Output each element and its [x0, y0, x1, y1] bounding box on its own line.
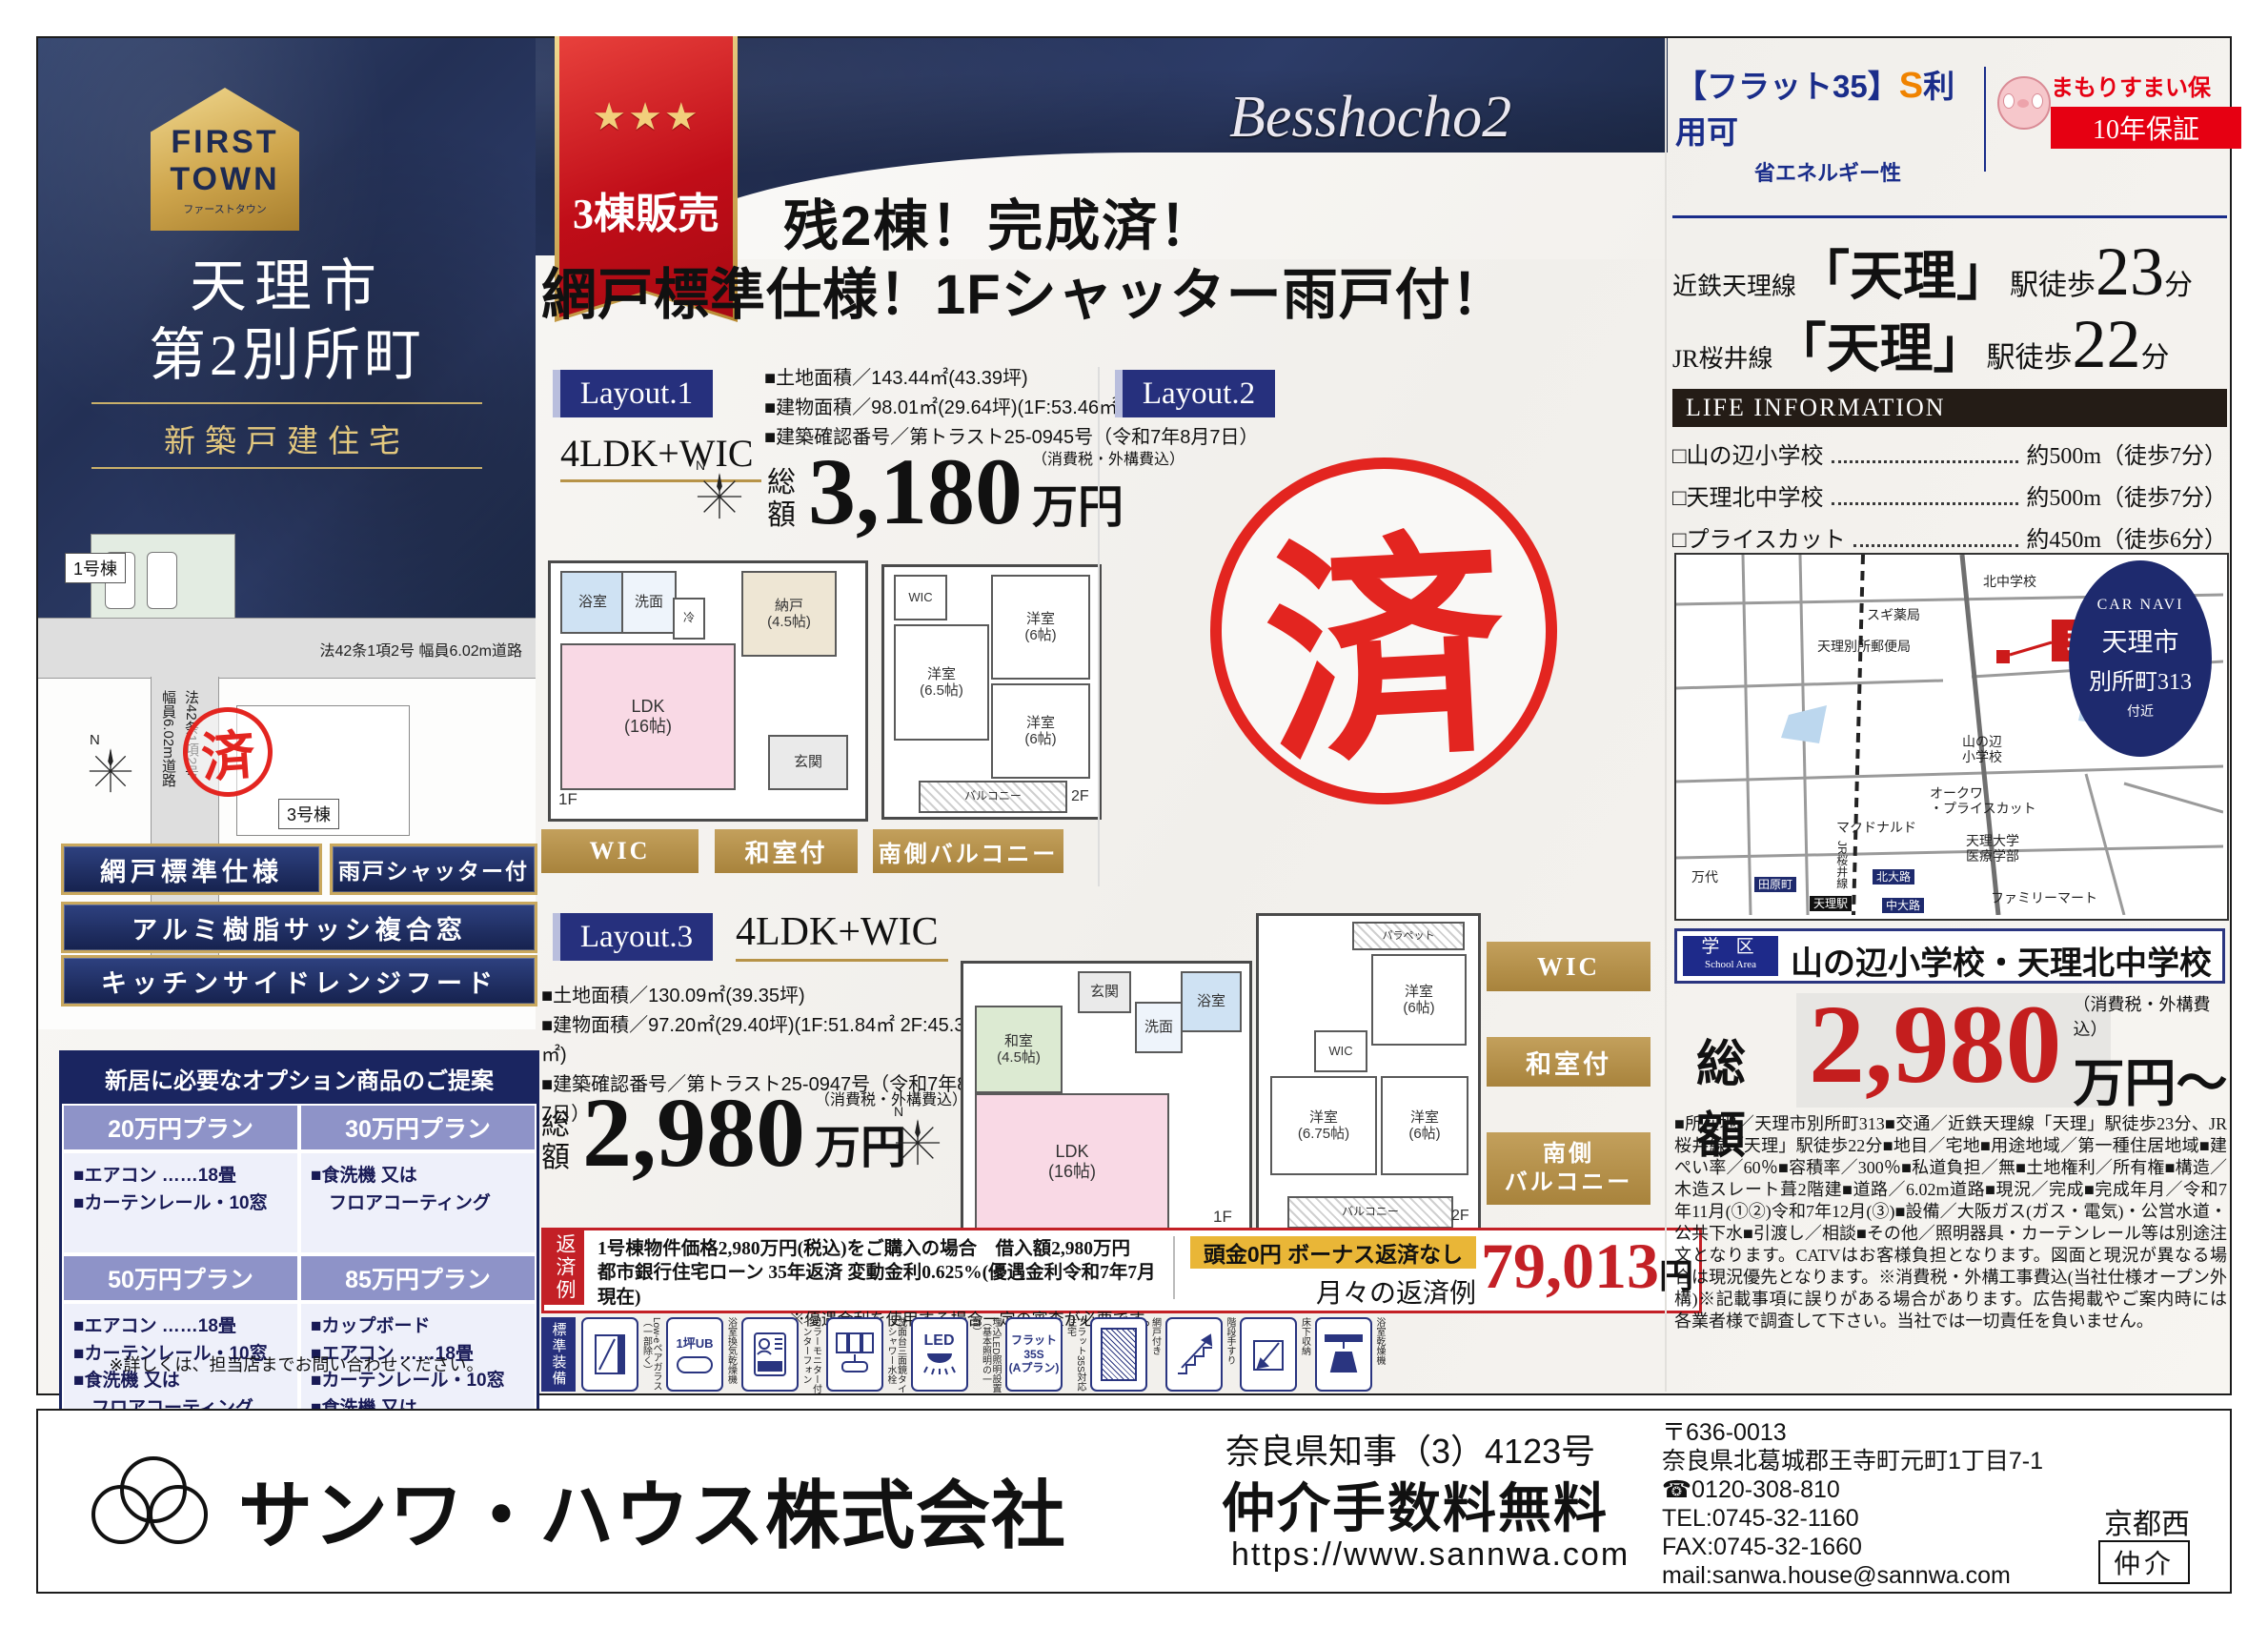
- price-note: （消費税・外構費込）: [815, 1087, 967, 1109]
- map-station-chip: 田原町: [1754, 877, 1796, 892]
- room-washroom: 洗面: [1135, 1002, 1183, 1053]
- station-line: JR桜井線: [1672, 339, 1772, 375]
- intercom-icon: [741, 1317, 799, 1392]
- map-label: スギ薬局: [1867, 607, 1920, 622]
- repayment-line1: 1号棟物件価格2,980万円(税込)をご購入の場合 借入額2,980万円: [597, 1237, 1160, 1261]
- school-area-tag: 学 区 School Area: [1683, 936, 1778, 976]
- equipment-item: 1坪UB 浴室換気乾燥機: [666, 1317, 736, 1392]
- repayment-highlight: 頭金0円 ボーナス返済なし: [1190, 1236, 1476, 1269]
- room-ldk: LDK (16帖): [560, 643, 736, 790]
- equipment-side-label: 標準装備: [541, 1317, 576, 1392]
- option-plan-items: ■エアコン ……18畳 ■カーテンレール・10窓: [62, 1151, 299, 1254]
- branch-name: 京都西: [2104, 1500, 2190, 1542]
- room-balcony: バルコニー: [919, 781, 1067, 813]
- company-logo-icon: [91, 1456, 206, 1544]
- brokerage-fee-free: 仲介手数料無料: [1222, 1466, 1609, 1543]
- column-divider: [1098, 367, 1100, 886]
- school-area-value: 山の辺小学校・天理北中学校: [1782, 937, 2220, 984]
- equipment-item: 浴室乾燥機: [1315, 1317, 1385, 1392]
- life-value: 約500m（徒歩7分）: [2026, 437, 2227, 470]
- station-walk: 駅徒歩: [1986, 334, 2072, 376]
- school-tag-en: School Area: [1683, 959, 1778, 970]
- company-url: https://www.sannwa.com: [1231, 1536, 1630, 1574]
- road-h-label: 法42条1項2号 幅員6.02m道路: [38, 619, 536, 661]
- station-unit: 分: [2140, 334, 2169, 376]
- gold-divider-top: [91, 402, 482, 404]
- floor-label-2f: 2F: [1071, 788, 1089, 805]
- flat35-underline: [1672, 215, 2227, 218]
- room-bedroom: 洋室 (6.75帖): [1270, 1076, 1377, 1175]
- layout3-feature-tag: 和室付: [1487, 1037, 1650, 1087]
- site-plot1-label: 1号棟: [65, 553, 126, 583]
- insurance-warranty: 10年保証: [2051, 107, 2241, 149]
- carnavi-title: CAR NAVI: [2097, 597, 2184, 614]
- map-label: 天理別所郵便局: [1817, 639, 1911, 654]
- equipment-strip: 標準装備 Low-eペアガラス（一部除く） 1坪UB 浴室換気乾燥機 カラーモニ…: [541, 1317, 1696, 1392]
- layout1-feature-tag: 和室付: [715, 829, 858, 873]
- logo-kana: ファーストタウン: [183, 201, 266, 216]
- sold-stamp-large: 済: [1202, 449, 1567, 814]
- layout3-tag: Layout.3: [560, 913, 713, 961]
- flat35-block: 【フラット35】S利用可 省エネルギー性: [1675, 61, 1980, 187]
- station-row-kintetsu: 近鉄天理線 「天理」 駅徒歩 23 分: [1672, 233, 2193, 312]
- feature-button-rangehood: キッチンサイドレンジフード: [61, 955, 537, 1006]
- compass-icon: N: [894, 1104, 942, 1171]
- room-washroom: 洗面: [621, 571, 677, 634]
- bath-dryer-icon: [1315, 1317, 1372, 1392]
- flat35-s: S: [1899, 66, 1923, 106]
- station-minutes: 22: [2072, 305, 2140, 384]
- life-label: □プライスカット: [1672, 520, 1846, 554]
- logo-town: TOWN: [170, 161, 279, 198]
- life-label: □山の辺小学校: [1672, 437, 1824, 470]
- layout3-floorplan-1f: 和室 (4.5帖) 玄関 洗面 浴室 LDK (16帖) 1F: [961, 961, 1252, 1239]
- ribbon-stars-icon: ★★★: [555, 95, 738, 139]
- price-note: （消費税・外構費込）: [1032, 446, 1185, 469]
- freedial-number: ☎0120-308-810: [1662, 1475, 2043, 1504]
- room-parapet: パラペット: [1352, 922, 1465, 950]
- option-plan-items: ■食洗機 又は フロアコーティング: [299, 1151, 537, 1254]
- room-balcony: バルコニー: [1287, 1196, 1453, 1229]
- layout1-price: 総額 3,180 （消費税・外構費込） 万円: [767, 446, 1185, 537]
- layout1-floorplan-2f: WIC 洋室 (6帖) 洋室 (6.5帖) 洋室 (6帖) バルコニー 2F: [881, 564, 1102, 820]
- map-station-chip: 天理駅: [1810, 896, 1852, 911]
- layout3-tag-bar: [553, 913, 560, 961]
- life-info-row: □山の辺小学校約500m（徒歩7分）: [1672, 437, 2227, 470]
- map-label: オークワ ・プライスカット: [1930, 785, 2036, 816]
- right-column-divider: [1665, 38, 1667, 1392]
- address: 奈良県北葛城郡王寺町元町1丁目7-1: [1662, 1447, 2043, 1475]
- footer-panel: サンワ・ハウス株式会社 奈良県知事（3）4123号 仲介手数料無料 https:…: [36, 1409, 2232, 1594]
- option-plans-title: 新居に必要なオプション商品のご提案: [62, 1053, 537, 1104]
- layout3-feature-tag: WIC: [1487, 942, 1650, 991]
- station-name: 「天理」: [1796, 234, 2010, 311]
- layout1-feature-tag: WIC: [541, 829, 699, 873]
- room-bedroom: 洋室 (6.5帖): [894, 624, 989, 741]
- equipment-item: カラーモニター付インターフォン: [741, 1317, 820, 1392]
- compass-n: N: [90, 732, 133, 748]
- total-amount: 2,980: [1809, 991, 2062, 1098]
- price-prefix: 総額: [767, 467, 799, 531]
- equipment-item: LED 埋込LED照明設置（基本照明の一部）: [911, 1317, 1001, 1392]
- map-label: 天理大学 医療学部: [1966, 833, 2019, 864]
- life-info-title: LIFE INFORMATION: [1672, 389, 2227, 427]
- layout3-spec-building: ■建物面積／97.20㎡(29.40坪)(1F:51.84㎡ 2F:45.36㎡…: [541, 1011, 989, 1070]
- room-entrance: 玄関: [768, 735, 848, 790]
- station-line: 近鉄天理線: [1672, 267, 1796, 302]
- station-row-jr: JR桜井線 「天理」 駅徒歩 22 分: [1672, 305, 2169, 384]
- room-storage: 納戸 (4.5帖): [741, 571, 837, 657]
- feature-button-amado: 雨戸シャッター付: [330, 844, 537, 895]
- option-plan-name: 50万円プラン: [62, 1254, 299, 1302]
- postal-code: 〒636-0013: [1662, 1418, 2043, 1447]
- layout3-feature-tag: 南側 バルコニー: [1487, 1132, 1650, 1205]
- repayment-divider: [1173, 1236, 1175, 1299]
- layout2-tag: Layout.2: [1123, 370, 1275, 417]
- station-walk: 駅徒歩: [2010, 261, 2096, 303]
- repayment-line2: 都市銀行住宅ローン 35年返済 変動金利0.625%(優遇金利令和7年7月現在): [597, 1261, 1160, 1310]
- tel-number: TEL:0745-32-1160: [1662, 1504, 2043, 1533]
- room-ldk: LDK (16帖): [975, 1093, 1169, 1230]
- map-label: 山の辺 小学校: [1962, 734, 2002, 764]
- layout1-tag: Layout.1: [560, 370, 713, 417]
- flat35s-badge: フラット 35S (Aプラン): [1005, 1317, 1063, 1392]
- repayment-amount: 79,013: [1481, 1232, 1659, 1300]
- area-map: 北中学校 スギ薬局 天理別所郵便局 現地 山の辺 小学校 オークワ ・プライスカ…: [1674, 553, 2229, 921]
- repayment-side-label: 返済例: [544, 1230, 584, 1305]
- map-station-chip: 中大路: [1882, 898, 1924, 913]
- life-info-list: □山の辺小学校約500m（徒歩7分） □天理北中学校約500m（徒歩7分） □プ…: [1672, 437, 2227, 554]
- property-details-text: ■所在地／天理市別所町313■交通／近鉄天理線「天理」駅徒歩23分、JR桜井線「…: [1674, 1113, 2227, 1332]
- layout3-floorplan-2f: パラペット 洋室 (6帖) WIC 洋室 (6.75帖) 洋室 (6帖) バルコ…: [1256, 913, 1481, 1239]
- ribbon-label: 3棟販売: [555, 179, 738, 240]
- washstand-icon: [826, 1317, 883, 1392]
- map-label: 北中学校: [1983, 574, 2036, 589]
- school-area-box: 学 区 School Area 山の辺小学校・天理北中学校: [1674, 928, 2225, 984]
- compass-n: N: [696, 457, 743, 473]
- feature-button-sash: アルミ樹脂サッシ複合窓: [61, 902, 537, 953]
- car-navi-bubble: CAR NAVI 天理市 別所町313 付近: [2069, 560, 2212, 757]
- layout2-tag-bar: [1115, 370, 1123, 417]
- pig-mascot-icon: [1997, 76, 2051, 130]
- price-amount: 2,980: [582, 1087, 805, 1181]
- layout1-tag-bar: [553, 370, 560, 417]
- option-plan-name: 20万円プラン: [62, 1104, 299, 1151]
- gold-divider-bottom: [91, 467, 482, 469]
- mesh-screen-icon: [1090, 1317, 1147, 1392]
- school-tag-jp: 学 区: [1683, 937, 1778, 959]
- equipment-item: 床下収納: [1240, 1317, 1309, 1392]
- stairs-handrail-icon: [1165, 1317, 1223, 1392]
- map-label: 万代: [1691, 869, 1718, 884]
- bathtub-icon: 1坪UB: [666, 1317, 723, 1392]
- life-info-row: □プライスカット約450m（徒歩6分）: [1672, 520, 2227, 554]
- layout3-type: 4LDK+WIC: [736, 909, 948, 962]
- room-fridge: 冷: [673, 598, 705, 640]
- option-plans-note: ※詳しくは、担当店までお問い合わせください。: [59, 1352, 534, 1376]
- compass-n: N: [894, 1104, 942, 1119]
- brokerage-badge: 仲介: [2098, 1540, 2190, 1584]
- layout1-feature-tag: 南側バルコニー: [873, 829, 1063, 873]
- equipment-item: 洗面台三面鏡タイプシャワー水栓: [826, 1317, 905, 1392]
- fax-number: FAX:0745-32-1660: [1662, 1533, 2043, 1561]
- room-bedroom: 洋室 (6帖): [991, 683, 1090, 779]
- layout1-floorplan-1f: 浴室 洗面 冷 納戸 (4.5帖) LDK (16帖) 玄関 1F: [548, 560, 868, 822]
- floor-label-1f: 1F: [1213, 1208, 1232, 1227]
- equipment-item: 階段手すり: [1165, 1317, 1235, 1392]
- life-value: 約500m（徒歩7分）: [2026, 478, 2227, 512]
- flyer-main-panel: Besshocho2 FIRST TOWN ファーストタウン 天理市 第2別所町…: [36, 36, 2232, 1395]
- car-icon: [147, 552, 177, 609]
- project-district: 第2別所町: [38, 309, 536, 392]
- option-plan-name: 85万円プラン: [299, 1254, 537, 1302]
- total-suffix: 万円〜: [2074, 1041, 2230, 1116]
- headline-line2: 網戸標準仕様！1Fシャッター雨戸付！: [541, 250, 1508, 330]
- station-minutes: 23: [2096, 233, 2164, 312]
- layout3-spec-land: ■土地面積／130.09㎡(39.35坪): [541, 982, 989, 1011]
- price-prefix: 総額: [541, 1109, 573, 1173]
- map-station-chip: 北大路: [1873, 869, 1914, 884]
- price-suffix: 万円: [1032, 469, 1185, 536]
- feature-button-amido: 網戸標準仕様: [61, 844, 322, 895]
- carnavi-city: 天理市: [2102, 621, 2179, 659]
- life-info-row: □天理北中学校約500m（徒歩7分）: [1672, 478, 2227, 512]
- map-label: ファミリーマート: [1991, 890, 2097, 905]
- repayment-amount-row: 79,013 円: [1488, 1232, 1693, 1300]
- equipment-item: フラット 35S (Aプラン) フラット35S対応住宅: [1005, 1317, 1084, 1392]
- equipment-item: 網戸付き: [1090, 1317, 1160, 1392]
- room-bedroom: 洋室 (6帖): [1371, 954, 1467, 1046]
- floor-label-1f: 1F: [558, 790, 577, 809]
- floor-storage-icon: [1240, 1317, 1297, 1392]
- option-plan-name: 30万円プラン: [299, 1104, 537, 1151]
- compass-icon: N: [696, 457, 743, 525]
- repayment-box: 返済例 1号棟物件価格2,980万円(税込)をご購入の場合 借入額2,980万円…: [541, 1228, 1702, 1313]
- room-bedroom: 洋室 (6帖): [991, 575, 1090, 680]
- station-name: 「天理」: [1772, 306, 1986, 383]
- room-bedroom: 洋室 (6帖): [1381, 1076, 1468, 1175]
- flat35-bracket: 【フラット35】: [1675, 69, 1899, 104]
- mail-address: mail:sanwa.house@sannwa.com: [1662, 1561, 2043, 1590]
- site-plot3-label: 3号棟: [278, 799, 339, 829]
- flat35-divider: [1984, 67, 1986, 172]
- life-value: 約450m（徒歩6分）: [2026, 520, 2227, 554]
- room-entrance: 玄関: [1078, 971, 1131, 1013]
- floor-label-2f: 2F: [1451, 1208, 1469, 1225]
- room-wic: WIC: [894, 575, 947, 620]
- price-amount: 3,180: [808, 446, 1023, 537]
- station-unit: 分: [2164, 261, 2193, 303]
- compass-icon: N: [88, 732, 133, 799]
- life-label: □天理北中学校: [1672, 478, 1824, 512]
- flat35-energy: 省エネルギー性: [1675, 156, 1980, 187]
- repayment-monthly-label: 月々の返済例: [1190, 1272, 1476, 1311]
- price-suffix: 万円: [815, 1109, 967, 1176]
- room-bathroom: 浴室: [1181, 971, 1242, 1032]
- map-label: マクドナルド: [1836, 820, 1916, 835]
- room-wic: WIC: [1314, 1030, 1367, 1072]
- company-name: サンワ・ハウス株式会社: [238, 1456, 1066, 1563]
- besshocho-script-banner: Besshocho2: [1229, 84, 1658, 152]
- carnavi-suffix: 付近: [2127, 701, 2154, 721]
- equipment-item: Low-eペアガラス（一部除く）: [581, 1317, 660, 1392]
- room-bathroom: 浴室: [560, 571, 625, 634]
- project-subtitle: 新築戸建住宅: [38, 416, 536, 461]
- site-road-horizontal: 法42条1項2号 幅員6.02m道路: [38, 618, 536, 679]
- logo-first: FIRST: [171, 124, 278, 161]
- room-japanese: 和室 (4.5帖): [975, 1006, 1063, 1093]
- pair-glass-window-icon: [581, 1317, 638, 1392]
- map-railline-label: JR桜井線: [1834, 841, 1848, 889]
- led-light-icon: LED: [911, 1317, 968, 1392]
- carnavi-address: 別所町313: [2089, 662, 2192, 696]
- total-note: （消費税・外構費込）: [2074, 991, 2230, 1041]
- company-address-block: 〒636-0013 奈良県北葛城郡王寺町元町1丁目7-1 ☎0120-308-8…: [1662, 1418, 2043, 1590]
- option-plans-box: 新居に必要なオプション商品のご提案 20万円プラン 30万円プラン ■エアコン …: [59, 1050, 539, 1471]
